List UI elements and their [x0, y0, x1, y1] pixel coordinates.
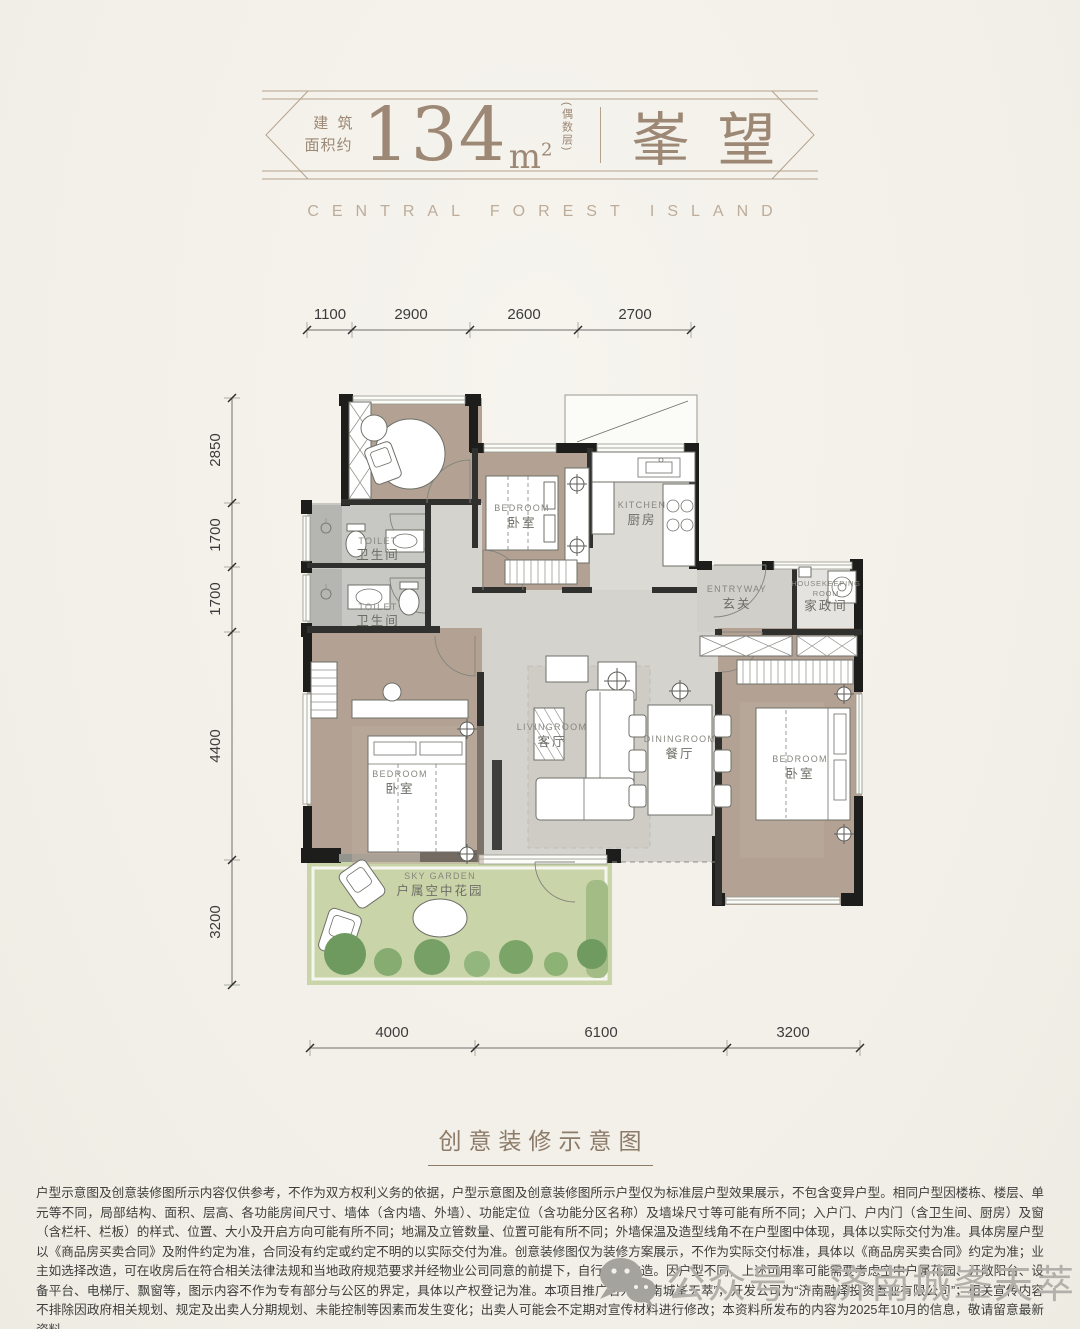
project-subtitle: CENTRAL FOREST ISLAND [0, 203, 1080, 221]
dim-left-4: 3200 [207, 905, 224, 938]
living-label-en: LIVINGROOM [517, 722, 588, 732]
bedroom-left-label-en: BEDROOM [372, 769, 428, 779]
floorplan-page: 建筑 面积约 134 m2 (偶数层) 峯望 CENTRAL FOREST IS… [0, 0, 1080, 1329]
entry-label-en: ENTRYWAY [707, 584, 767, 594]
plan-caption: 创意装修示意图 [428, 1122, 653, 1166]
dim-left-3: 4400 [207, 729, 224, 762]
area-unit: m2 [509, 137, 553, 177]
area-label-line1: 建筑 [305, 113, 362, 136]
area-label-line2: 面积约 [305, 137, 353, 154]
housekeeping-label-cn: 家政间 [804, 598, 848, 613]
dimensions-top: 1100 2900 2600 2700 [303, 306, 695, 338]
badge-content: 建筑 面积约 134 m2 (偶数层) 峯望 [262, 83, 818, 187]
floorplan-drawing: TOILET 卫生间 TOILET 卫生间 BEDROOM 卧室 KITCHEN… [0, 278, 1080, 1088]
dim-left-1: 1700 [207, 518, 224, 551]
watermark-text: 公众号 · 济南城峯天萃 [666, 1254, 1076, 1310]
dimensions-left: 2850 1700 1700 4400 3200 [207, 394, 240, 989]
toilet-upper-label-en: TOILET [358, 536, 397, 546]
project-name: 峯望 [631, 93, 803, 177]
bedroom-right-label-en: BEDROOM [772, 754, 828, 764]
caption-wrap: 创意装修示意图 [0, 1122, 1080, 1166]
garden-label-cn: 户属空中花园 [396, 883, 483, 898]
dim-top-2: 2600 [507, 306, 540, 323]
bedroom-top-label-en: BEDROOM [494, 503, 550, 513]
bedroom-left-label-cn: 卧室 [385, 781, 414, 796]
toilet-lower-label-en: TOILET [358, 602, 397, 612]
dim-left-0: 2850 [207, 433, 224, 466]
wechat-icon [596, 1256, 658, 1308]
housekeeping-label-en1: HOUSEKEEPING [791, 579, 861, 588]
dim-top-3: 2700 [618, 306, 651, 323]
badge-divider [600, 107, 601, 163]
housekeeping-label-en2: ROOM [813, 589, 840, 598]
toilet-lower-label-cn: 卫生间 [356, 614, 400, 628]
floor-note: (偶数层) [558, 102, 574, 168]
bedroom-right-label-cn: 卧室 [785, 766, 814, 781]
dining-label-cn: 餐厅 [665, 746, 694, 761]
kitchen-label-cn: 厨房 [627, 512, 656, 527]
dim-bottom-1: 6100 [584, 1024, 617, 1041]
dim-bottom-2: 3200 [776, 1024, 809, 1041]
watermark: 公众号 · 济南城峯天萃 [596, 1254, 1076, 1310]
toilet-upper-label-cn: 卫生间 [356, 548, 400, 562]
living-label-cn: 客厅 [537, 734, 566, 749]
kitchen-balcony [565, 395, 697, 447]
dim-top-0: 1100 [314, 306, 346, 323]
area-value: 134 [363, 98, 507, 172]
dimensions-bottom: 4000 6100 3200 [306, 1024, 864, 1056]
dim-top-1: 2900 [394, 306, 427, 323]
dim-bottom-0: 4000 [375, 1024, 408, 1041]
area-label: 建筑 面积约 [305, 113, 353, 158]
dim-left-2: 1700 [207, 582, 224, 615]
garden-label-en: SKY GARDEN [404, 871, 476, 881]
dining-label-en: DININGROOM [644, 734, 717, 744]
kitchen-label-en: KITCHEN [618, 500, 667, 510]
entry-label-cn: 玄关 [722, 596, 751, 611]
bedroom-top-label-cn: 卧室 [507, 515, 536, 530]
header-badge: 建筑 面积约 134 m2 (偶数层) 峯望 [262, 83, 818, 187]
